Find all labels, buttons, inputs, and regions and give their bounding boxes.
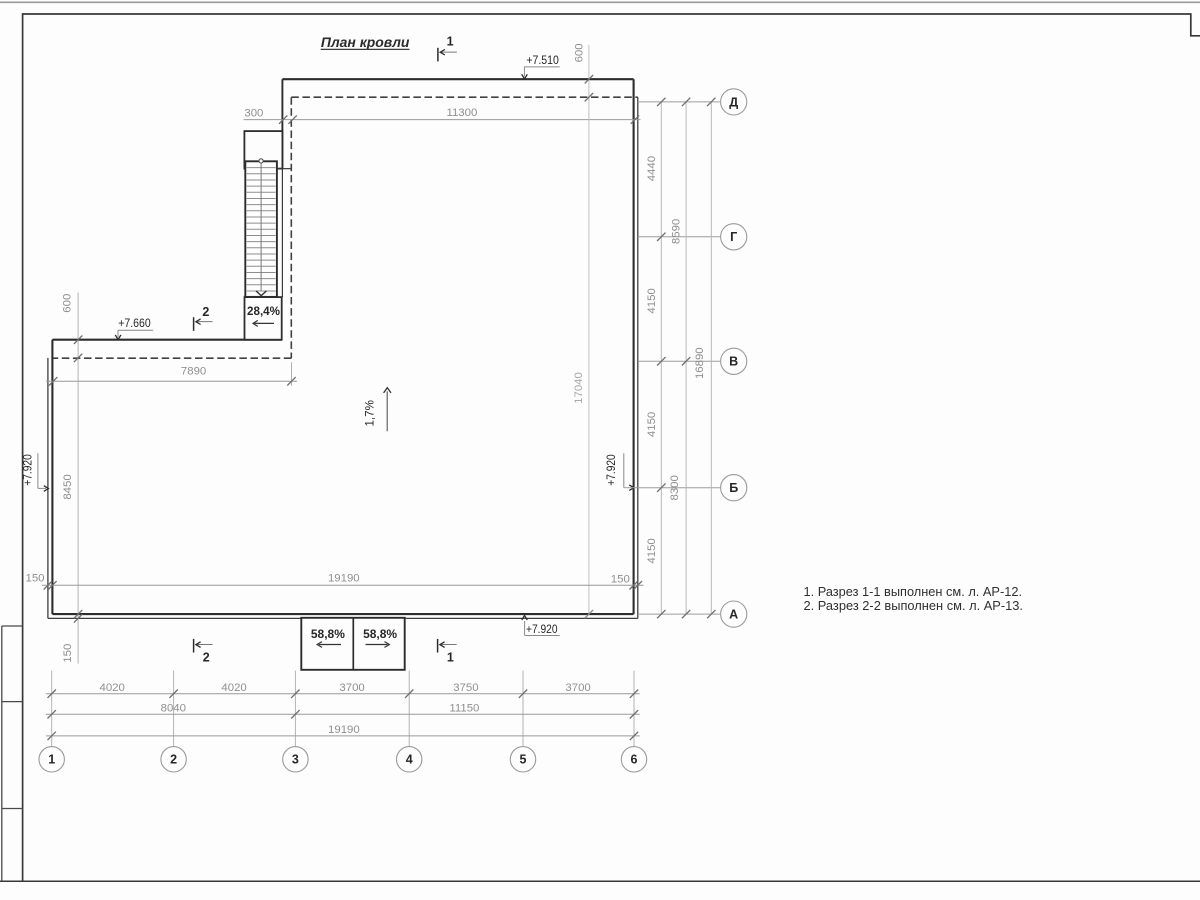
svg-text:600: 600 [62,294,74,313]
svg-text:150: 150 [611,574,630,586]
svg-text:5: 5 [520,753,527,767]
svg-text:1: 1 [48,753,55,767]
svg-text:8590: 8590 [671,219,683,244]
svg-text:Д: Д [729,95,738,109]
svg-text:7890: 7890 [181,366,206,378]
svg-text:1: 1 [447,35,454,49]
svg-text:6: 6 [631,753,638,767]
svg-text:28,4%: 28,4% [247,305,280,318]
svg-text:3700: 3700 [339,682,364,694]
svg-text:58,8%: 58,8% [311,628,345,641]
svg-text:+7.920: +7.920 [605,454,618,486]
svg-text:4150: 4150 [646,538,658,563]
svg-text:В: В [729,355,738,369]
svg-text:19190: 19190 [328,724,360,736]
svg-text:+7.660: +7.660 [118,317,151,330]
svg-text:300: 300 [244,108,263,120]
svg-text:16890: 16890 [694,347,706,379]
svg-text:150: 150 [25,572,44,584]
svg-text:2: 2 [203,650,210,664]
svg-text:150: 150 [62,644,74,663]
svg-text:4: 4 [406,753,413,767]
svg-text:4150: 4150 [646,288,658,313]
svg-text:3750: 3750 [453,682,478,694]
svg-text:8300: 8300 [669,475,681,500]
svg-text:8450: 8450 [62,474,74,499]
svg-text:А: А [729,608,738,622]
svg-text:11300: 11300 [446,107,477,119]
svg-text:4020: 4020 [221,682,246,694]
svg-text:+7.920: +7.920 [526,623,558,636]
svg-text:8040: 8040 [161,702,186,714]
svg-text:2: 2 [170,753,177,767]
svg-text:17040: 17040 [573,372,585,404]
svg-text:3700: 3700 [565,682,590,694]
svg-text:Б: Б [729,481,738,495]
svg-text:+7.920: +7.920 [22,454,35,486]
svg-text:19190: 19190 [328,573,360,585]
svg-text:11150: 11150 [449,702,479,714]
svg-text:+7.510: +7.510 [526,54,559,67]
svg-text:2: 2 [202,305,209,319]
svg-text:1: 1 [447,650,454,664]
svg-text:Г: Г [730,230,737,244]
svg-text:4150: 4150 [646,412,658,437]
svg-text:1. Разрез 1-1 выполнен см. л.: 1. Разрез 1-1 выполнен см. л. АР-12. [804,584,1023,599]
svg-text:600: 600 [574,43,586,62]
svg-text:2. Разрез 2-2 выполнен см. л.: 2. Разрез 2-2 выполнен см. л. АР-13. [804,598,1024,613]
svg-text:План кровли: План кровли [321,35,410,50]
svg-text:3: 3 [292,753,299,767]
svg-text:1,7%: 1,7% [363,400,376,426]
svg-text:4020: 4020 [100,682,125,694]
svg-text:58,8%: 58,8% [363,628,397,641]
svg-text:4440: 4440 [646,156,658,181]
